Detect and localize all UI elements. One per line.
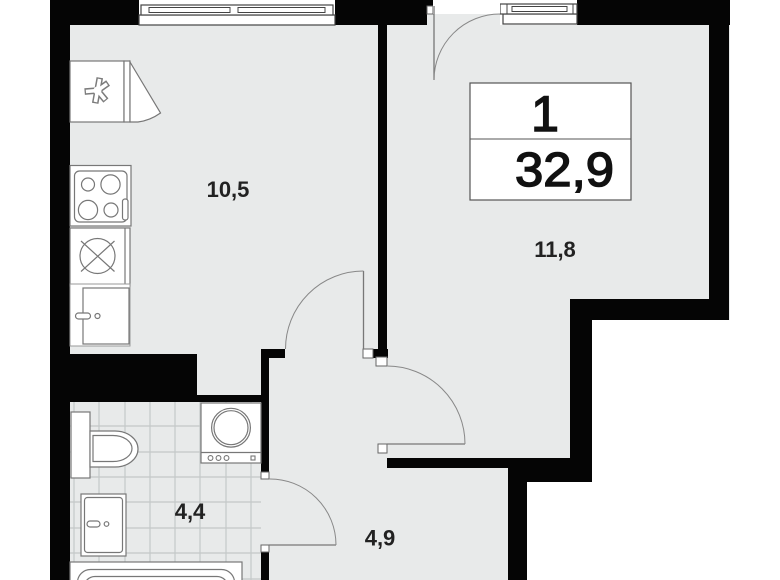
svg-text:1: 1 [531, 86, 559, 142]
svg-text:4,4: 4,4 [175, 499, 206, 524]
svg-text:4,9: 4,9 [365, 526, 396, 551]
svg-text:32,9: 32,9 [515, 144, 614, 197]
svg-text:11,8: 11,8 [534, 237, 576, 262]
svg-text:10,5: 10,5 [207, 177, 250, 202]
